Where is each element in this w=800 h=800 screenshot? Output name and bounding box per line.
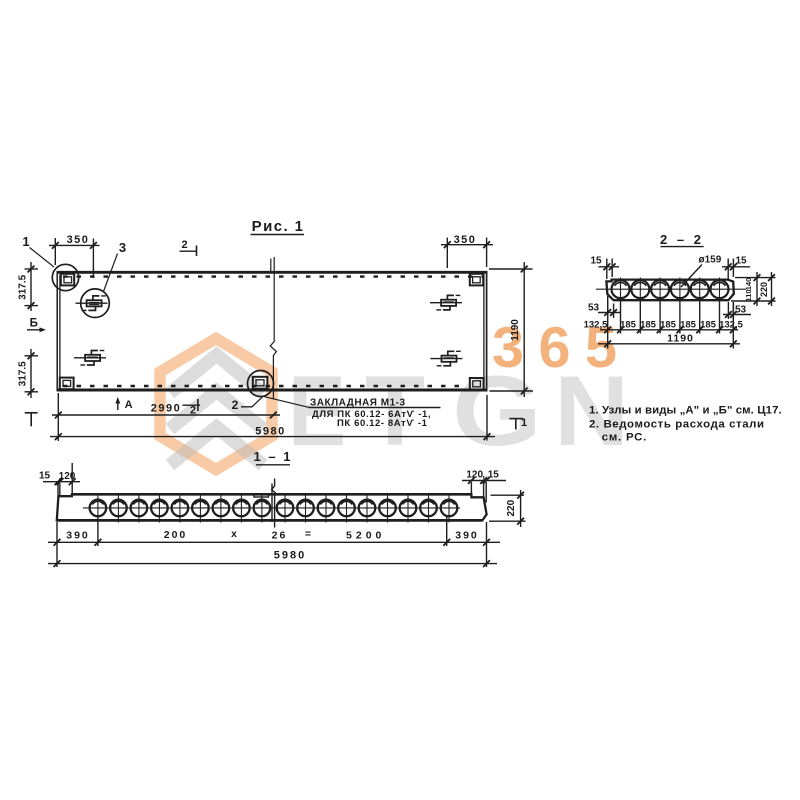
- svg-text:390: 390: [66, 530, 90, 542]
- svg-text:15: 15: [590, 256, 602, 267]
- svg-text:=: =: [305, 528, 311, 540]
- svg-text:Б: Б: [30, 318, 38, 330]
- svg-text:390: 390: [455, 530, 479, 542]
- svg-text:53: 53: [588, 303, 600, 314]
- svg-text:185: 185: [640, 319, 657, 330]
- svg-text:Рис. 1: Рис. 1: [252, 218, 305, 235]
- svg-text:5980: 5980: [274, 550, 306, 562]
- svg-text:1. Узлы и виды „А" и „Б" см. Ц: 1. Узлы и виды „А" и „Б" см. Ц17.: [589, 404, 782, 416]
- svg-text:120: 120: [59, 471, 76, 482]
- svg-text:53: 53: [735, 305, 747, 316]
- svg-text:2. Ведомость расхода стали: 2. Ведомость расхода стали: [589, 419, 765, 431]
- svg-text:15: 15: [735, 256, 747, 267]
- svg-text:ЗАКЛАДНАЯ М1-3: ЗАКЛАДНАЯ М1-3: [310, 398, 406, 409]
- svg-text:1 – 1: 1 – 1: [254, 449, 293, 464]
- svg-text:2: 2: [181, 239, 187, 251]
- svg-text:x: x: [231, 528, 237, 540]
- svg-text:110: 110: [744, 289, 753, 301]
- svg-text:200: 200: [164, 529, 188, 541]
- svg-text:350: 350: [67, 234, 90, 246]
- svg-text:5200: 5200: [346, 530, 385, 542]
- svg-text:2: 2: [232, 398, 239, 412]
- svg-text:185: 185: [700, 319, 717, 330]
- svg-text:185: 185: [660, 319, 677, 330]
- svg-text:G: G: [452, 355, 542, 466]
- svg-text:185: 185: [620, 319, 637, 330]
- svg-text:1: 1: [22, 234, 29, 249]
- svg-text:А: А: [125, 399, 133, 411]
- svg-text:185: 185: [680, 319, 697, 330]
- svg-text:140: 140: [744, 278, 753, 291]
- svg-text:2 – 2: 2 – 2: [660, 232, 704, 247]
- svg-text:3: 3: [119, 240, 126, 255]
- svg-text:220: 220: [506, 499, 517, 516]
- svg-text:1190: 1190: [510, 319, 521, 341]
- svg-text:1: 1: [521, 417, 527, 429]
- svg-text:ПК 60.12- 8АтѴ -1: ПК 60.12- 8АтѴ -1: [337, 418, 428, 429]
- svg-text:15: 15: [39, 471, 51, 482]
- svg-text:220: 220: [759, 282, 769, 297]
- svg-text:5980: 5980: [255, 426, 285, 438]
- svg-text:ø159: ø159: [699, 255, 722, 266]
- svg-text:1190: 1190: [667, 333, 694, 345]
- svg-text:26: 26: [272, 530, 288, 542]
- svg-text:см. РС.: см. РС.: [602, 432, 647, 444]
- svg-text:2990: 2990: [151, 403, 181, 415]
- svg-text:120: 120: [466, 470, 483, 481]
- svg-text:350: 350: [454, 234, 477, 246]
- svg-text:132,5: 132,5: [719, 319, 743, 330]
- svg-text:132,5: 132,5: [584, 319, 608, 330]
- svg-text:317.5: 317.5: [18, 361, 29, 386]
- svg-text:317.5: 317.5: [18, 274, 29, 299]
- svg-text:, 15: , 15: [482, 470, 499, 481]
